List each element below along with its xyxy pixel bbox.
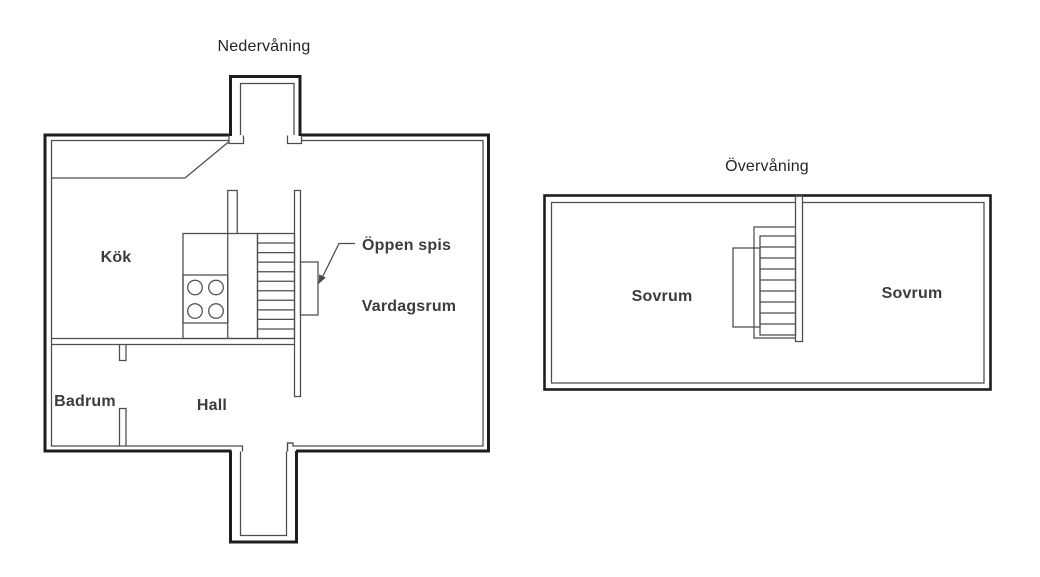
door-jamb-bottom-right [288,443,294,452]
room-label-vardagsrum: Vardagsrum [362,298,456,315]
floor-title-nedervaning: Nedervåning [218,37,311,55]
floor-title-overvaning: Övervåning [725,157,809,175]
floorplan-canvas: Nedervåning [0,0,1040,577]
stove-burner [209,304,224,319]
stove-burner [209,280,224,295]
badrum-door-jamb [120,345,127,361]
floorplan-image: Nedervåning [0,0,1040,577]
room-label-sovrum-right: Sovrum [882,285,943,302]
stair-landing [733,248,760,327]
stair-right-wall [295,191,301,397]
door-jamb-top-right [288,136,302,144]
entry-porch-bottom-inner [241,452,287,536]
room-label-sovrum-left: Sovrum [632,288,693,305]
staircase-outline [258,234,295,339]
wall-outline-right [296,135,489,451]
door-jamb-top-left [229,136,244,144]
room-label-badrum: Badrum [54,393,116,410]
fireplace-group [301,244,356,316]
entry-porch-top-inner [241,84,295,136]
floorplan-overvaning: Övervåning Sovrum Sovrum [545,157,991,390]
staircase-outline-upper [760,236,796,335]
room-label-kok: Kök [101,249,132,266]
annotation-arrowhead-icon [319,274,326,284]
annotation-leader-line [321,244,355,281]
annotation-label-oppen-spis: Öppen spis [362,235,451,254]
staircase-treads [258,243,295,329]
kitchen-fixtures [183,234,258,339]
badrum-wall [120,409,127,447]
room-label-hall: Hall [197,397,227,414]
staircase-nedervaning [258,234,295,339]
kitchen-partition [52,142,229,178]
fireplace [301,262,319,315]
stove-burner [188,280,203,295]
staircase-treads-upper [760,247,796,324]
inner-wall-right [288,141,484,452]
floorplan-nedervaning: Nedervåning [45,37,489,542]
divider-wall [796,196,803,342]
stair-left-wall [228,191,238,339]
stove-burner [188,304,203,319]
